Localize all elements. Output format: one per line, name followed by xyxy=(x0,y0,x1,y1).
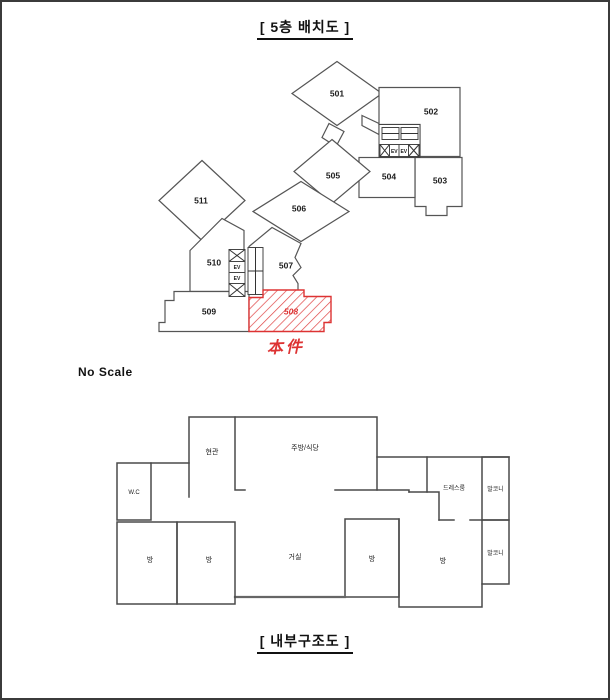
room-bedroom1-label: 방 xyxy=(147,555,154,564)
unit-511-label: 511 xyxy=(194,196,208,206)
room-kitchen-label: 주방/식당 xyxy=(291,443,319,452)
elevator-label: EV xyxy=(234,265,241,271)
unit-506-label: 506 xyxy=(292,204,306,214)
unit-503-label: 503 xyxy=(433,176,447,186)
elevator-core-lower: EV EV xyxy=(229,248,263,297)
unit-501-label: 501 xyxy=(330,89,344,99)
unit-502-label: 502 xyxy=(424,107,438,117)
unit-504-label: 504 xyxy=(382,172,396,182)
unit-510-label: 510 xyxy=(207,258,221,268)
unit-509-label: 509 xyxy=(202,307,216,317)
no-scale-note: No Scale xyxy=(78,365,133,379)
site-plan-diagram: EV EV EV EV xyxy=(102,52,482,362)
subject-note-label: 本件 xyxy=(266,337,305,357)
page-title-floor-layout: [ 5층 배치도 ] xyxy=(2,17,608,40)
elevator-label: EV xyxy=(391,149,398,155)
room-dressroom-label: 드레스룸 xyxy=(443,484,466,492)
elevator-label: EV xyxy=(400,149,407,155)
room-bedroom2-label: 방 xyxy=(206,555,213,564)
elevator-label: EV xyxy=(234,276,241,282)
unit-507-label: 507 xyxy=(279,261,293,271)
appraisal-floorplan-page: [ 5층 배치도 ] xyxy=(0,0,610,700)
page-title-internal-structure: [ 내부구조도 ] xyxy=(2,631,608,654)
stair-x-box xyxy=(229,250,245,262)
unit-503-outline xyxy=(415,158,462,216)
stair-x-box xyxy=(229,284,245,297)
room-balcony2-label: 발코니 xyxy=(487,549,504,557)
room-bedroom4-label: 방 xyxy=(440,556,447,565)
interior-floor-plan-diagram: 현관 주방/식당 W.C 방 방 거실 방 방 드레스룸 발코니 발코니 xyxy=(107,407,517,619)
stair-x-box xyxy=(409,145,420,157)
room-entrance-label: 현관 xyxy=(206,447,219,456)
room-wc-label: W.C xyxy=(128,490,140,496)
room-living-label: 거실 xyxy=(289,552,302,561)
subject-unit-508-label: 508 xyxy=(284,307,298,317)
room-labels: 현관 주방/식당 W.C 방 방 거실 방 방 드레스룸 발코니 발코니 xyxy=(128,443,503,565)
page-title-internal-structure-text: [ 내부구조도 ] xyxy=(257,631,354,654)
room-balcony1-label: 발코니 xyxy=(487,485,504,493)
unit-505-label: 505 xyxy=(326,171,340,181)
stair-x-box xyxy=(380,145,390,157)
elevator-core-upper: EV EV xyxy=(379,125,420,158)
room-bedroom3-label: 방 xyxy=(369,554,376,563)
page-title-floor-layout-text: [ 5층 배치도 ] xyxy=(257,17,353,40)
